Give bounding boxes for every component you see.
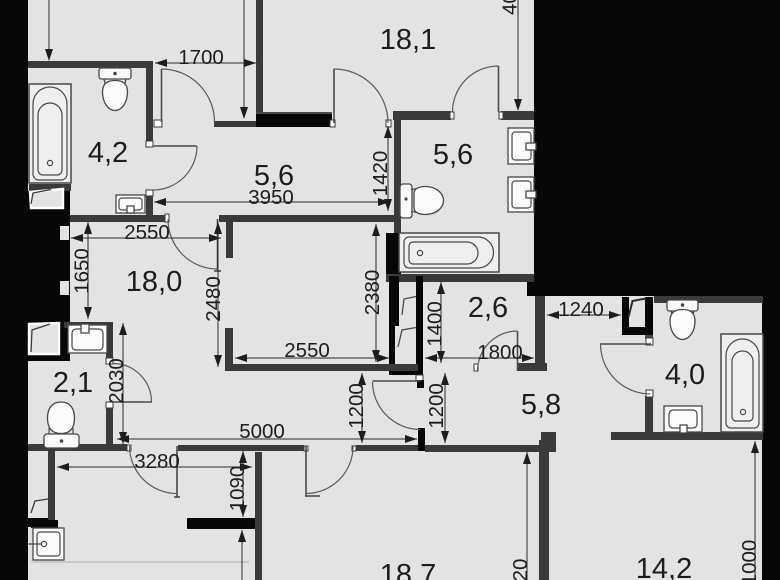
svg-text:18,7: 18,7 xyxy=(380,559,436,580)
svg-text:5,6: 5,6 xyxy=(254,160,294,192)
svg-text:4000: 4000 xyxy=(499,0,522,15)
svg-text:20: 20 xyxy=(509,559,532,580)
svg-text:2380: 2380 xyxy=(361,270,384,316)
svg-text:1400: 1400 xyxy=(424,301,447,347)
svg-text:1000: 1000 xyxy=(738,540,761,580)
svg-text:18,1: 18,1 xyxy=(380,24,436,56)
svg-text:2030: 2030 xyxy=(105,358,128,404)
svg-text:2550: 2550 xyxy=(284,339,330,362)
svg-text:1800: 1800 xyxy=(477,341,523,364)
svg-text:1700: 1700 xyxy=(178,46,224,69)
svg-text:2480: 2480 xyxy=(202,276,225,322)
svg-text:1200: 1200 xyxy=(425,383,448,429)
svg-text:1420: 1420 xyxy=(369,151,392,197)
svg-text:1650: 1650 xyxy=(71,248,94,294)
svg-text:1240: 1240 xyxy=(558,298,604,321)
svg-text:1200: 1200 xyxy=(345,383,368,429)
svg-text:5000: 5000 xyxy=(239,420,285,443)
svg-text:5,6: 5,6 xyxy=(433,139,473,171)
svg-text:3280: 3280 xyxy=(134,450,180,473)
svg-text:4,2: 4,2 xyxy=(88,137,128,169)
svg-text:2550: 2550 xyxy=(124,221,170,244)
svg-text:4,0: 4,0 xyxy=(665,359,705,391)
svg-text:5,8: 5,8 xyxy=(521,389,561,421)
svg-text:2,6: 2,6 xyxy=(468,292,508,324)
svg-text:14,2: 14,2 xyxy=(636,553,692,580)
svg-text:18,0: 18,0 xyxy=(126,266,182,298)
svg-text:1090: 1090 xyxy=(226,466,249,512)
svg-text:2,1: 2,1 xyxy=(53,367,93,399)
